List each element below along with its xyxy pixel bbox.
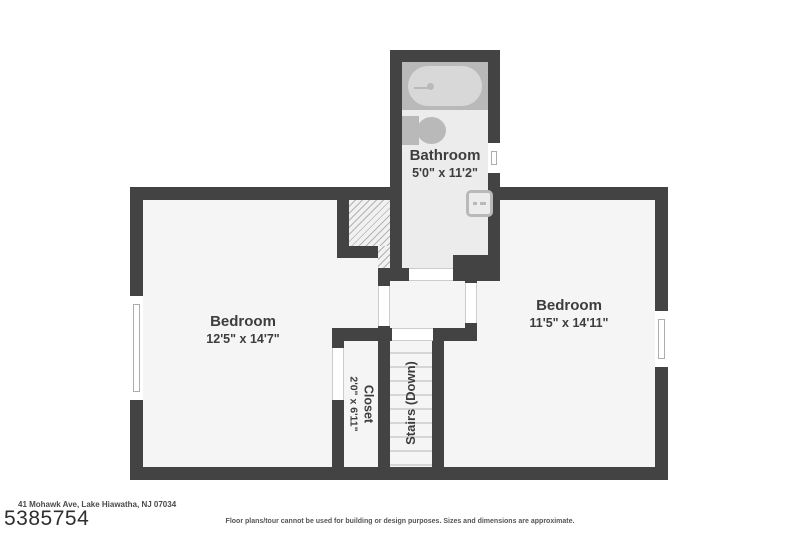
stairs-label: Stairs (Down) <box>402 361 420 445</box>
room-name: Bedroom <box>206 313 279 331</box>
door-opening-left-bedroom <box>378 286 390 326</box>
room-dims: 5'0" x 11'2" <box>410 166 481 181</box>
window-pane <box>133 304 140 392</box>
door-opening-right-bedroom <box>465 283 477 323</box>
stair-tread <box>390 464 432 466</box>
window-pane <box>491 151 497 165</box>
room-dims: 2'0" x 6'11" <box>347 376 360 431</box>
stairs-wall-right <box>432 328 444 467</box>
room-name: Bedroom <box>530 297 609 315</box>
bathroom-wall-top <box>390 50 500 62</box>
bathroom-wall-left <box>390 50 402 281</box>
stairs-wall-left <box>378 328 390 467</box>
room-dims: 11'5" x 14'11" <box>530 316 609 331</box>
disclaimer-text: Floor plans/tour cannot be used for buil… <box>226 518 575 525</box>
hatched-void-area <box>349 200 390 246</box>
room-name: Stairs (Down) <box>402 361 420 445</box>
room-name: Bathroom <box>410 147 481 165</box>
hatched-void-extension <box>378 246 390 268</box>
stair-tread <box>390 450 432 452</box>
door-opening-bathroom <box>409 268 453 281</box>
bathroom-label: Bathroom 5'0" x 11'2" <box>410 147 481 181</box>
door-opening-stairs <box>392 328 433 341</box>
listing-number: 5385754 <box>4 507 89 531</box>
window-pane <box>658 319 665 359</box>
void-wall-bottom <box>337 246 378 258</box>
sink-tap <box>480 202 486 205</box>
window-icon-bathroom <box>488 143 500 173</box>
bathtub-drain <box>427 83 434 90</box>
left-bedroom-label: Bedroom 12'5" x 14'7" <box>206 313 279 347</box>
room-name: Closet <box>361 376 376 431</box>
closet-label: Closet 2'0" x 6'11" <box>347 376 376 431</box>
bathtub-icon <box>402 62 488 110</box>
stair-tread <box>390 352 432 354</box>
floor-plan-page: Bathroom 5'0" x 11'2" Bedroom 12'5" x 14… <box>0 0 800 533</box>
sink-icon <box>466 190 493 217</box>
window-icon-right-bedroom <box>655 311 668 367</box>
toilet-bowl-icon <box>417 117 446 144</box>
door-opening-closet <box>332 348 344 400</box>
right-bedroom-label: Bedroom 11'5" x 14'11" <box>530 297 609 331</box>
room-dims: 12'5" x 14'7" <box>206 332 279 347</box>
window-icon-left-bedroom <box>130 296 143 400</box>
sink-tap <box>473 202 477 205</box>
bathtub-basin <box>408 66 482 106</box>
